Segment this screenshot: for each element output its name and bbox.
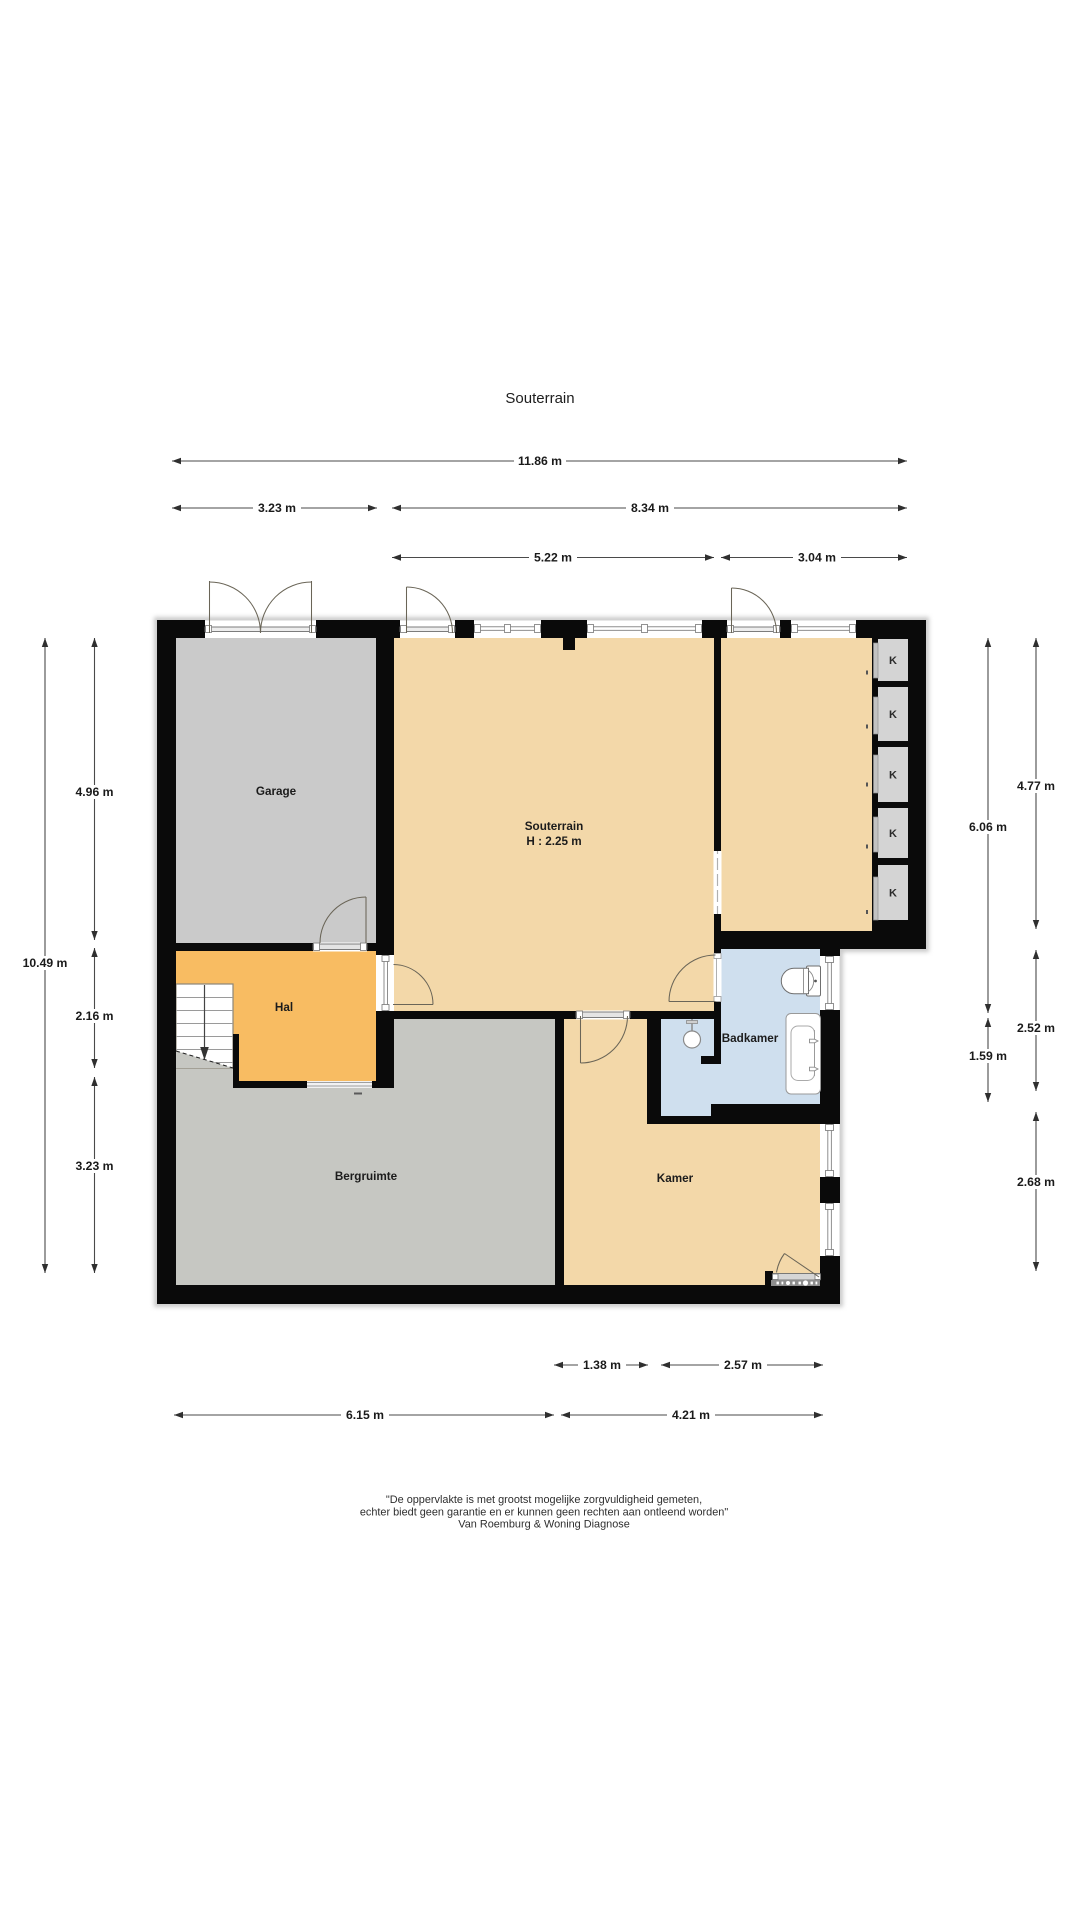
svg-text:Souterrain: Souterrain — [525, 820, 583, 833]
svg-text:3.23 m: 3.23 m — [258, 501, 296, 515]
svg-text:10.49 m: 10.49 m — [23, 956, 68, 970]
svg-text:K: K — [889, 709, 897, 721]
svg-text:8.34 m: 8.34 m — [631, 501, 669, 515]
svg-text:"De oppervlakte is met grootst: "De oppervlakte is met grootst mogelijke… — [386, 1494, 702, 1506]
svg-text:2.68 m: 2.68 m — [1017, 1175, 1055, 1189]
svg-text:4.96 m: 4.96 m — [76, 785, 114, 799]
svg-text:K: K — [889, 828, 897, 840]
svg-text:2.16 m: 2.16 m — [76, 1009, 114, 1023]
svg-text:5.22 m: 5.22 m — [534, 551, 572, 565]
svg-text:4.77 m: 4.77 m — [1017, 779, 1055, 793]
svg-text:Badkamer: Badkamer — [722, 1032, 779, 1045]
svg-text:2.52 m: 2.52 m — [1017, 1021, 1055, 1035]
svg-text:Van Roemburg & Woning Diagnose: Van Roemburg & Woning Diagnose — [458, 1519, 630, 1531]
svg-text:1.59 m: 1.59 m — [969, 1049, 1007, 1063]
svg-text:4.21 m: 4.21 m — [672, 1408, 710, 1422]
svg-text:K: K — [889, 655, 897, 667]
svg-text:2.57 m: 2.57 m — [724, 1358, 762, 1372]
svg-text:echter biedt geen garantie en: echter biedt geen garantie en er kunnen … — [360, 1506, 729, 1518]
svg-text:6.15 m: 6.15 m — [346, 1408, 384, 1422]
svg-text:Hal: Hal — [275, 1001, 293, 1014]
svg-text:3.23 m: 3.23 m — [76, 1159, 114, 1173]
svg-text:Souterrain: Souterrain — [505, 390, 574, 407]
svg-text:11.86 m: 11.86 m — [518, 454, 562, 468]
svg-text:1.38 m: 1.38 m — [583, 1358, 621, 1372]
svg-text:Kamer: Kamer — [657, 1172, 694, 1185]
svg-text:H : 2.25 m: H : 2.25 m — [526, 835, 581, 848]
svg-text:Bergruimte: Bergruimte — [335, 1170, 398, 1183]
svg-text:K: K — [889, 770, 897, 782]
svg-text:K: K — [889, 888, 897, 900]
svg-text:3.04 m: 3.04 m — [798, 551, 836, 565]
svg-text:Garage: Garage — [256, 785, 297, 798]
svg-text:6.06 m: 6.06 m — [969, 820, 1007, 834]
